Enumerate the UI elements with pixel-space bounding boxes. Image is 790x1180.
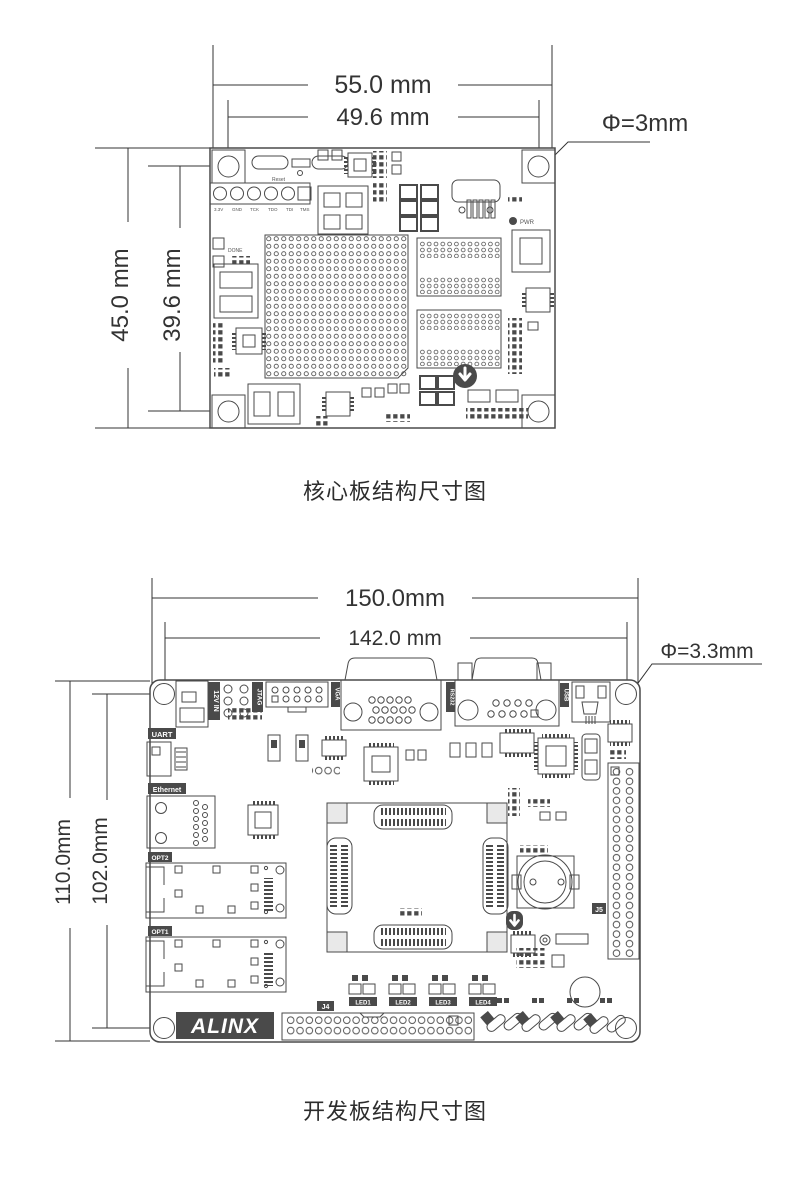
pcb-dimension-diagrams-page: 55.0 mm 49.6 mm Φ=3mm 45.0 mm 39.6 mm — [0, 0, 790, 1180]
core-hole-dia-label: Φ=3mm — [602, 110, 689, 137]
core-width-outer-label: 55.0 mm — [334, 71, 431, 99]
dev-led1-label: LED1 — [355, 1001, 371, 1007]
dev-alinx-label: ALINX — [190, 1015, 260, 1038]
dev-alinx-logo: ALINX — [176, 1012, 274, 1039]
core-reset-label: Reset — [272, 177, 286, 183]
dev-led2-label: LED2 — [395, 1001, 411, 1007]
core-width-inner-label: 49.6 mm — [336, 104, 429, 131]
core-pin-3v3: 3.3V — [214, 207, 223, 212]
dev-led4-label: LED4 — [475, 1001, 491, 1007]
dev-vga-label: VGA — [334, 687, 340, 701]
core-board-caption: 核心板结构尺寸图 — [0, 474, 790, 506]
core-bga-grid — [265, 235, 408, 378]
core-height-inner-label: 39.6 mm — [159, 248, 186, 341]
dev-12vin-tag: 12V IN — [208, 682, 220, 720]
dev-height-outer-label: 110.0mm — [52, 819, 75, 905]
dev-usb-label: USB — [563, 689, 569, 702]
dev-led3-label: LED3 — [435, 1001, 451, 1007]
dev-rs232-label: RS232 — [449, 689, 455, 706]
dev-opt1-label: OPT1 — [152, 929, 169, 936]
dev-uart-label: UART — [152, 730, 173, 739]
dev-jtag-label: JTAG — [256, 689, 263, 706]
core-height-outer-label: 45.0 mm — [107, 248, 134, 341]
dev-12vin-label: 12V IN — [212, 690, 219, 711]
core-pin-gnd: GND — [232, 207, 243, 212]
dev-j4-label: J4 — [322, 1004, 330, 1011]
dev-width-outer-label: 150.0mm — [345, 585, 445, 612]
dev-j5-label: J5 — [595, 907, 603, 914]
dev-board-caption: 开发板结构尺寸图 — [0, 1094, 790, 1126]
core-pin-tdi: TDI — [286, 207, 293, 212]
dev-ethernet-label: Ethernet — [153, 787, 182, 794]
core-pin-tms: TMS — [300, 207, 310, 212]
diagram-canvas: 55.0 mm 49.6 mm Φ=3mm 45.0 mm 39.6 mm — [0, 0, 790, 1180]
dev-opt2-label: OPT2 — [152, 855, 169, 862]
core-board-drawing: Reset 3.3V GND TCK TDO TDI TMS — [210, 148, 555, 428]
dev-width-inner-label: 142.0 mm — [348, 627, 441, 650]
core-down-arrow-icon — [453, 364, 477, 388]
core-pin-tdo: TDO — [268, 207, 278, 212]
core-pin-tck: TCK — [250, 207, 259, 212]
core-board-figure: 55.0 mm 49.6 mm Φ=3mm 45.0 mm 39.6 mm — [95, 45, 688, 428]
core-done-label: DONE — [228, 248, 243, 254]
dev-board-drawing: 12V IN JTAG VGA — [146, 658, 640, 1043]
core-pwr-label: PWR — [520, 220, 535, 226]
dev-board-figure: 150.0mm 142.0 mm Φ=3.3mm 110.0mm 102.0mm — [52, 578, 762, 1043]
dev-hole-dia-label: Φ=3.3mm — [660, 640, 753, 663]
dev-height-inner-label: 102.0mm — [89, 817, 112, 905]
dev-down-arrow-icon — [506, 911, 523, 930]
